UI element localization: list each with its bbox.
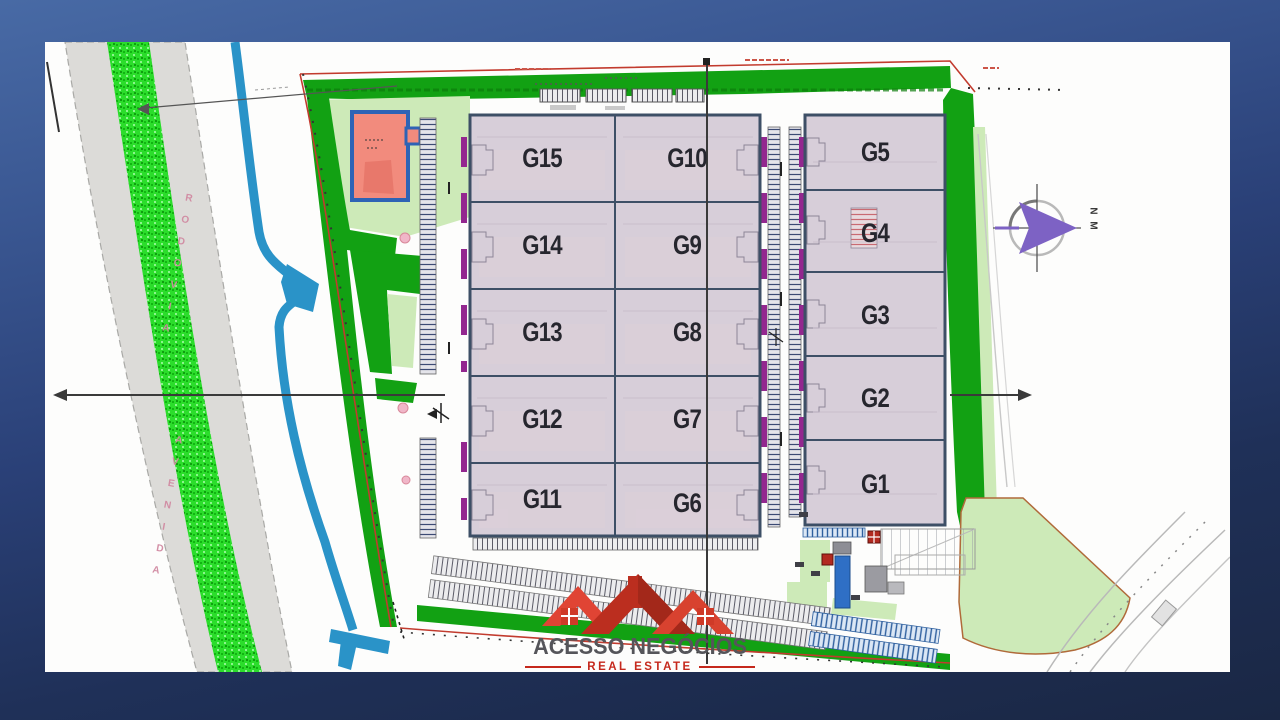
left-road (65, 42, 292, 672)
unit-label-g10: G10 (650, 143, 724, 174)
unit-label-g11: G11 (505, 484, 579, 515)
top-parking-rows (540, 89, 704, 110)
logo-subtitle: REAL ESTATE (525, 661, 755, 672)
logo-rule-right (699, 666, 755, 668)
gatehouse-building (352, 112, 420, 200)
unit-label-g1: G1 (838, 469, 912, 500)
logo-rule-left (525, 666, 581, 668)
site-plan-drawing (45, 42, 1230, 672)
compass-north-icon (993, 184, 1081, 272)
unit-label-g5: G5 (838, 137, 912, 168)
unit-label-g7: G7 (650, 404, 724, 435)
unit-label-g13: G13 (505, 317, 579, 348)
unit-label-g3: G3 (838, 300, 912, 331)
unit-label-g12: G12 (505, 404, 579, 435)
unit-label-g2: G2 (838, 383, 912, 414)
logo-title: ACESSO NEGÓCIOS (523, 633, 758, 660)
unit-label-g4: G4 (838, 218, 912, 249)
unit-label-g15: G15 (505, 143, 579, 174)
unit-label-g9: G9 (650, 230, 724, 261)
unit-label-g14: G14 (505, 230, 579, 261)
logo-subtitle-text: REAL ESTATE (587, 661, 692, 672)
compass-label: N M (1088, 207, 1099, 231)
site-plan: G15 G14 G13 G12 G11 G10 G9 G8 G7 G6 G5 G… (45, 42, 1230, 672)
unit-label-g6: G6 (650, 488, 724, 519)
unit-label-g8: G8 (650, 317, 724, 348)
